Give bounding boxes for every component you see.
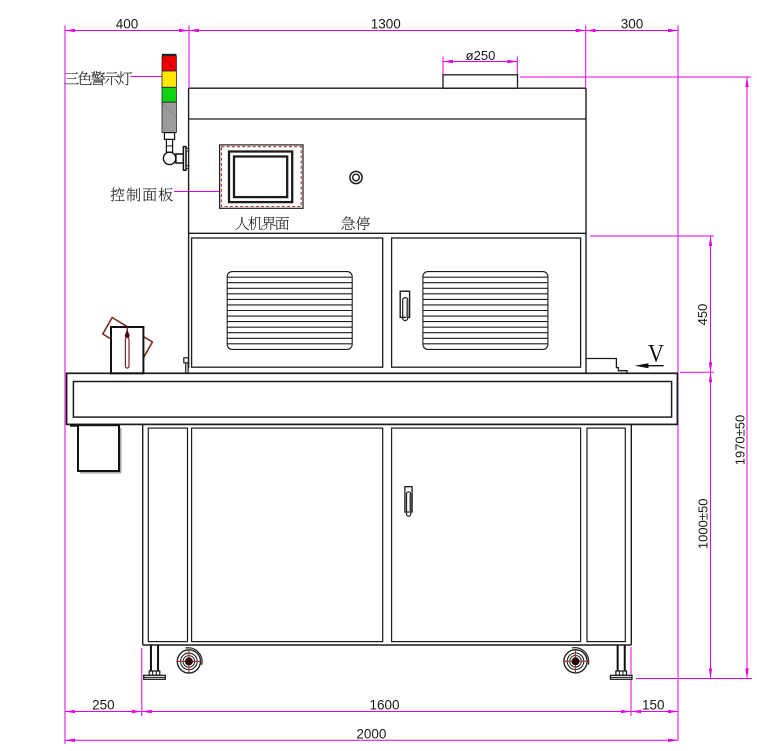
svg-text:400: 400 [116, 16, 139, 31]
svg-text:1000±50: 1000±50 [696, 499, 711, 550]
svg-text:1300: 1300 [371, 16, 401, 31]
svg-text:150: 150 [642, 697, 665, 712]
svg-text:1600: 1600 [369, 697, 399, 712]
svg-text:ø250: ø250 [466, 48, 496, 63]
svg-text:1970±50: 1970±50 [733, 415, 748, 466]
svg-text:2000: 2000 [356, 727, 386, 742]
svg-text:300: 300 [621, 16, 644, 31]
svg-text:250: 250 [92, 697, 115, 712]
svg-text:450: 450 [695, 304, 710, 326]
svg-text:V: V [648, 341, 664, 368]
